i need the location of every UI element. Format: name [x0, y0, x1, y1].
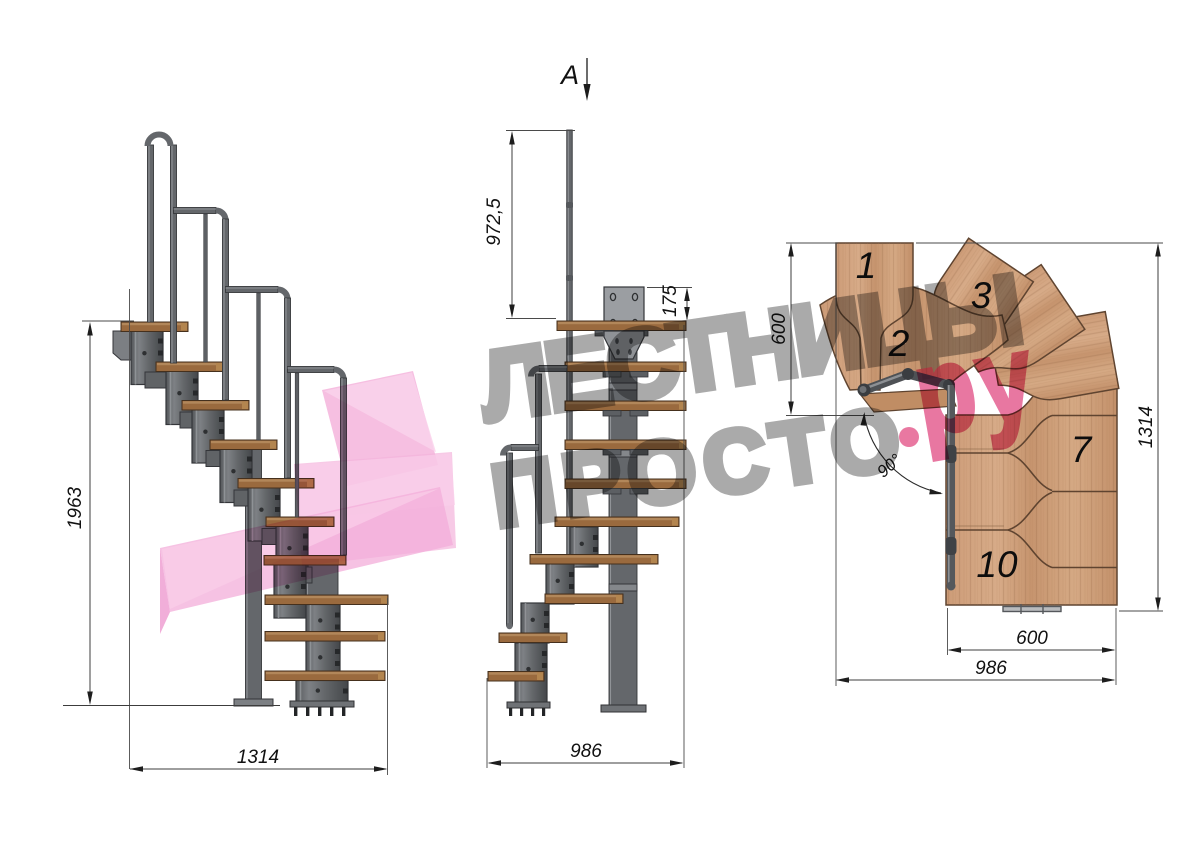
svg-text:1314: 1314	[237, 747, 279, 768]
svg-text:7: 7	[1071, 429, 1093, 470]
svg-text:10: 10	[976, 544, 1018, 585]
svg-text:A: A	[559, 60, 579, 90]
svg-text:1314: 1314	[1136, 406, 1157, 448]
svg-text:972,5: 972,5	[484, 198, 505, 246]
svg-text:600: 600	[1016, 628, 1048, 649]
svg-text:986: 986	[975, 658, 1007, 679]
svg-text:986: 986	[570, 741, 602, 762]
svg-text:ру: ру	[904, 307, 1048, 462]
svg-text:1963: 1963	[65, 486, 86, 529]
